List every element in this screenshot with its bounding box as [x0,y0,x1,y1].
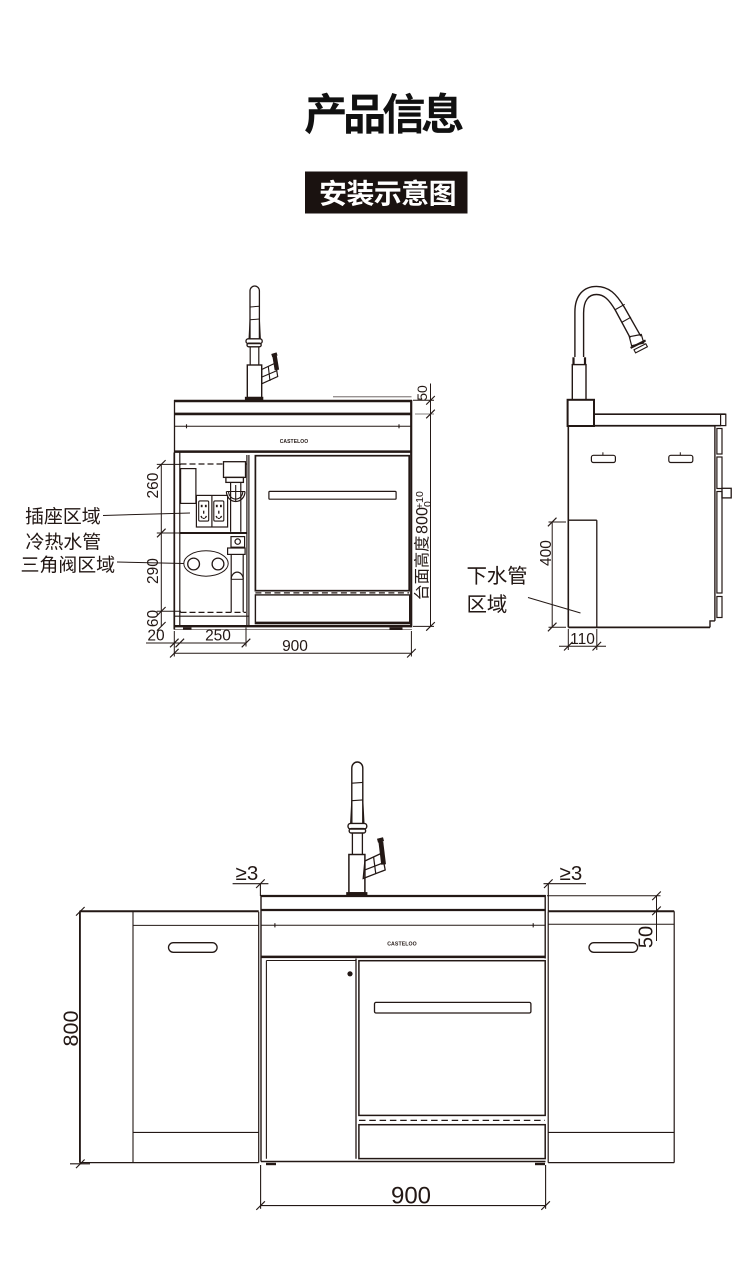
svg-text:290: 290 [145,558,162,584]
svg-text:≥3: ≥3 [560,862,583,885]
svg-text:CASTELOO: CASTELOO [387,941,417,947]
svg-text:50: 50 [414,385,430,401]
svg-text:≥3: ≥3 [236,862,259,885]
svg-text:0: 0 [422,501,434,507]
svg-text:50: 50 [636,926,658,948]
svg-text:60: 60 [145,610,162,628]
svg-text:400: 400 [538,540,555,566]
svg-text:110: 110 [570,631,595,648]
svg-text:800: 800 [59,1011,83,1047]
svg-text:900: 900 [391,1182,431,1209]
svg-text:800: 800 [414,507,432,534]
svg-text:250: 250 [205,628,231,645]
svg-text:260: 260 [145,472,162,498]
svg-text:CASTELOO: CASTELOO [280,439,309,445]
svg-text:20: 20 [147,628,165,645]
svg-text:900: 900 [282,638,308,655]
